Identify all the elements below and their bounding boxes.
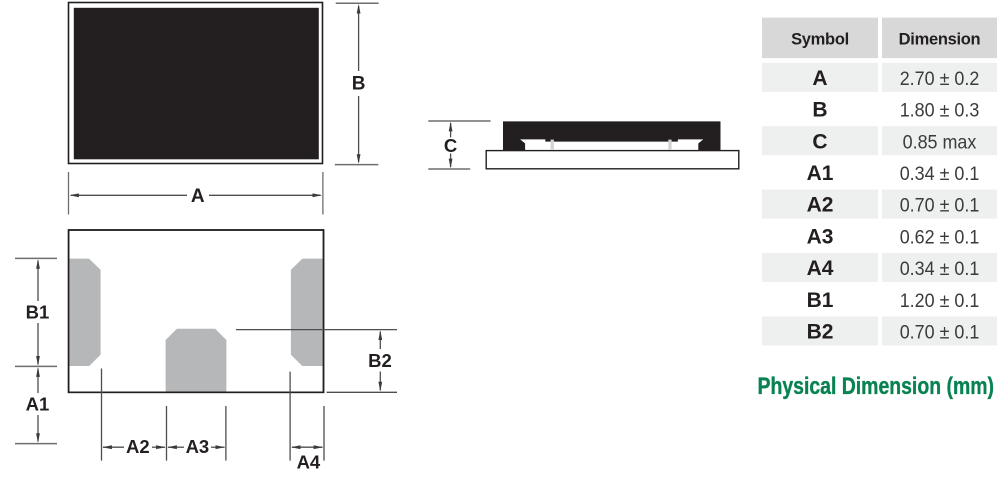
svg-text:B: B — [812, 99, 827, 122]
svg-text:0.34 ± 0.1: 0.34 ± 0.1 — [900, 162, 980, 184]
svg-text:A3: A3 — [186, 436, 210, 457]
svg-text:C: C — [812, 130, 827, 153]
svg-text:A4: A4 — [297, 451, 321, 472]
svg-text:C: C — [444, 135, 457, 156]
svg-text:0.70 ± 0.1: 0.70 ± 0.1 — [900, 194, 980, 216]
svg-text:A1: A1 — [26, 393, 50, 414]
svg-text:A: A — [191, 186, 205, 207]
svg-text:B1: B1 — [26, 301, 50, 322]
svg-text:Dimension: Dimension — [899, 30, 981, 48]
svg-text:0.62 ± 0.1: 0.62 ± 0.1 — [900, 226, 980, 248]
svg-text:1.20 ± 0.1: 1.20 ± 0.1 — [900, 289, 980, 311]
svg-text:2.70 ± 0.2: 2.70 ± 0.2 — [900, 67, 980, 89]
svg-text:Physical Dimension (mm): Physical Dimension (mm) — [758, 372, 994, 399]
svg-text:0.34 ± 0.1: 0.34 ± 0.1 — [900, 257, 980, 279]
svg-text:0.85 max: 0.85 max — [903, 131, 977, 153]
svg-text:0.70 ± 0.1: 0.70 ± 0.1 — [900, 321, 980, 343]
svg-text:A: A — [812, 67, 827, 90]
svg-text:A2: A2 — [126, 436, 150, 457]
svg-text:B1: B1 — [807, 289, 834, 312]
svg-text:1.80 ± 0.3: 1.80 ± 0.3 — [900, 99, 980, 121]
svg-text:A4: A4 — [807, 257, 834, 280]
svg-text:B2: B2 — [807, 321, 834, 344]
svg-text:B2: B2 — [368, 350, 392, 371]
svg-text:B: B — [352, 74, 366, 95]
svg-text:Symbol: Symbol — [791, 30, 849, 48]
svg-text:A2: A2 — [807, 194, 834, 217]
svg-text:A1: A1 — [807, 162, 834, 185]
svg-text:A3: A3 — [807, 225, 834, 248]
